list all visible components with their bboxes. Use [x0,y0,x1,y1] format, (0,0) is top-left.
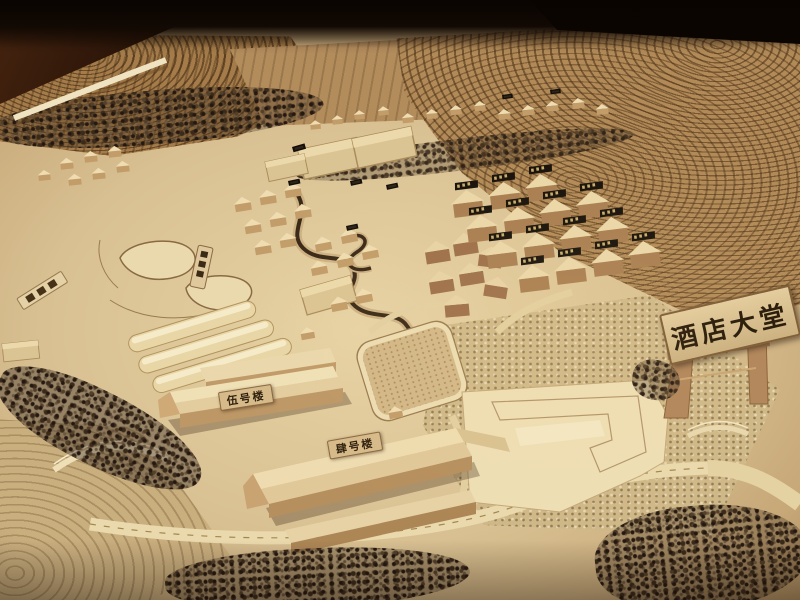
warehouse-blocks [265,127,417,182]
scale-model-photo: 酒店大堂 伍号楼 肆号楼 [0,0,800,600]
hamlet-center [300,179,398,315]
elevated-road-northwest [14,60,168,124]
hamlet-northwest [37,145,130,186]
village-strip-north [309,89,609,130]
ground-plaque-west [17,271,68,310]
pond-garden [17,240,252,318]
terraced-field-plot [353,317,471,424]
